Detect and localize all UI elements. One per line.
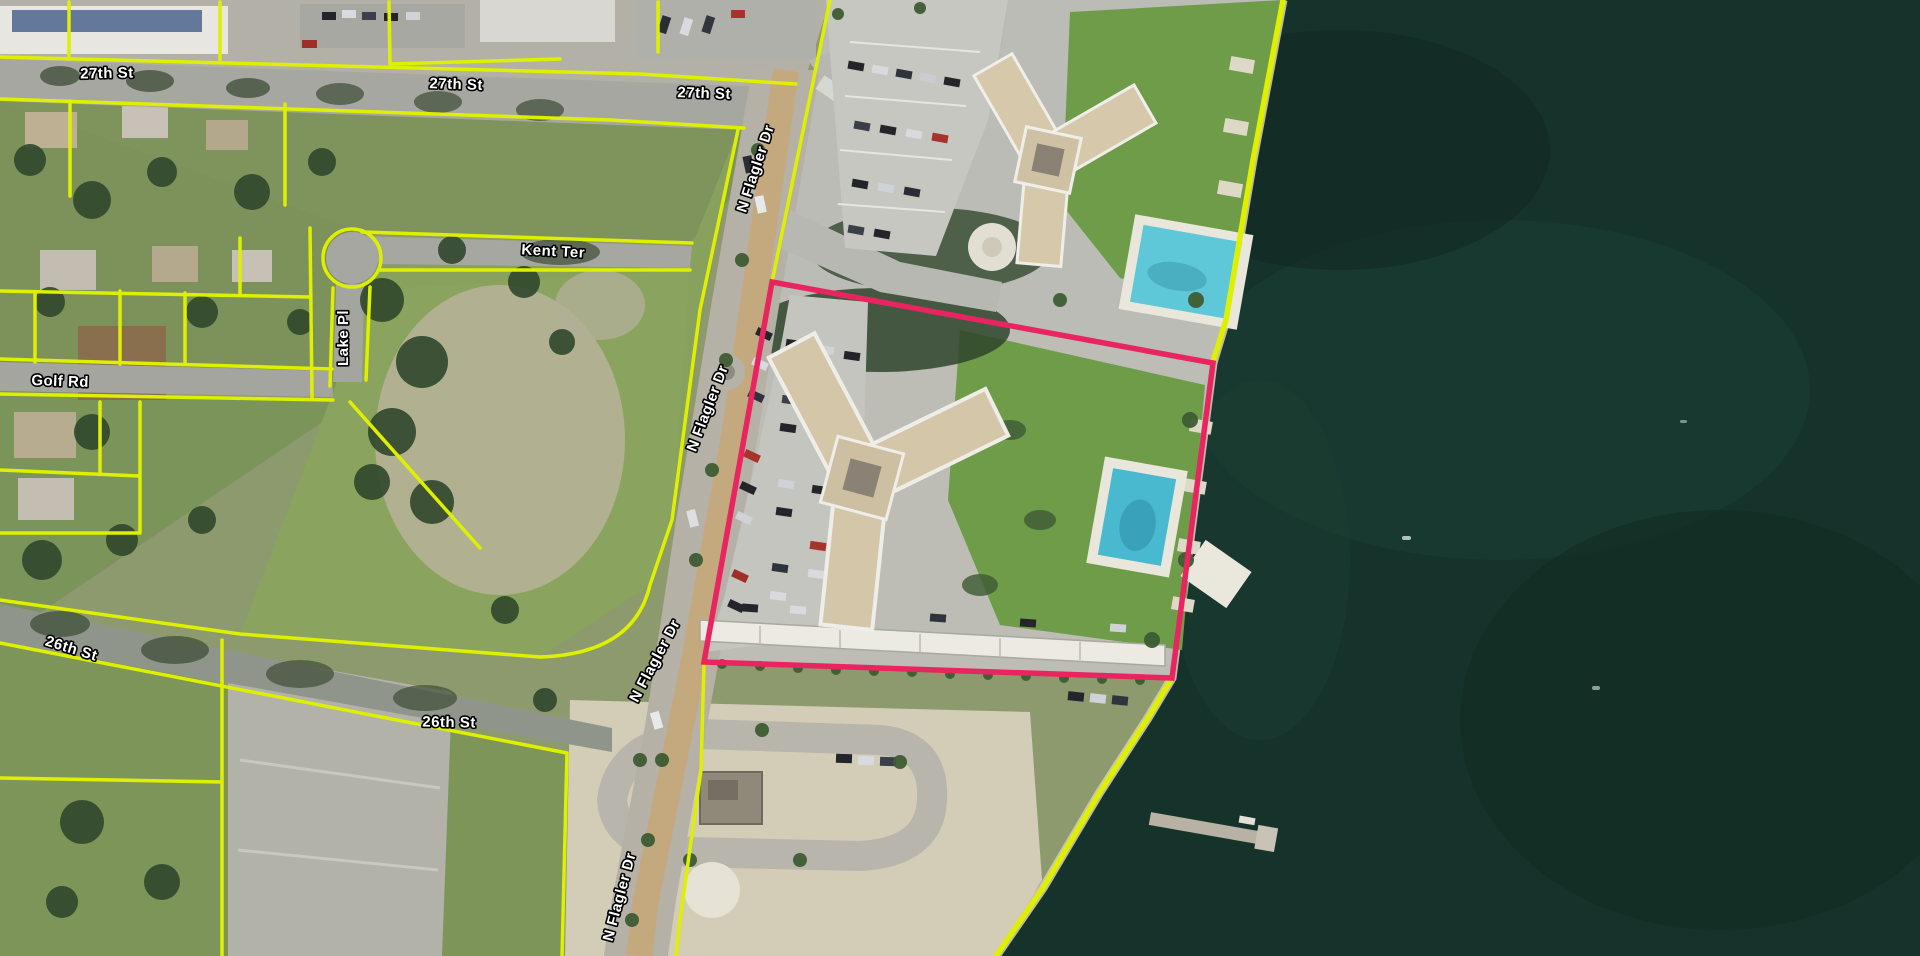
street-label-27th-st-3: 27th St: [677, 84, 731, 103]
map-canvas[interactable]: 27th St 27th St 27th St N Flagler Dr Ken…: [0, 0, 1920, 956]
street-label-golf-rd: Golf Rd: [31, 372, 89, 391]
street-label-lake-pl: Lake Pl: [335, 310, 352, 366]
street-label-kent-ter: Kent Ter: [521, 241, 586, 261]
street-label-27th-st-2: 27th St: [429, 75, 483, 94]
street-label-26th-st-2: 26th St: [422, 714, 476, 732]
map-viewport[interactable]: 27th St 27th St 27th St N Flagler Dr Ken…: [0, 0, 1920, 956]
street-label-27th-st-1: 27th St: [80, 65, 134, 83]
aerial-imagery: [0, 0, 1920, 956]
